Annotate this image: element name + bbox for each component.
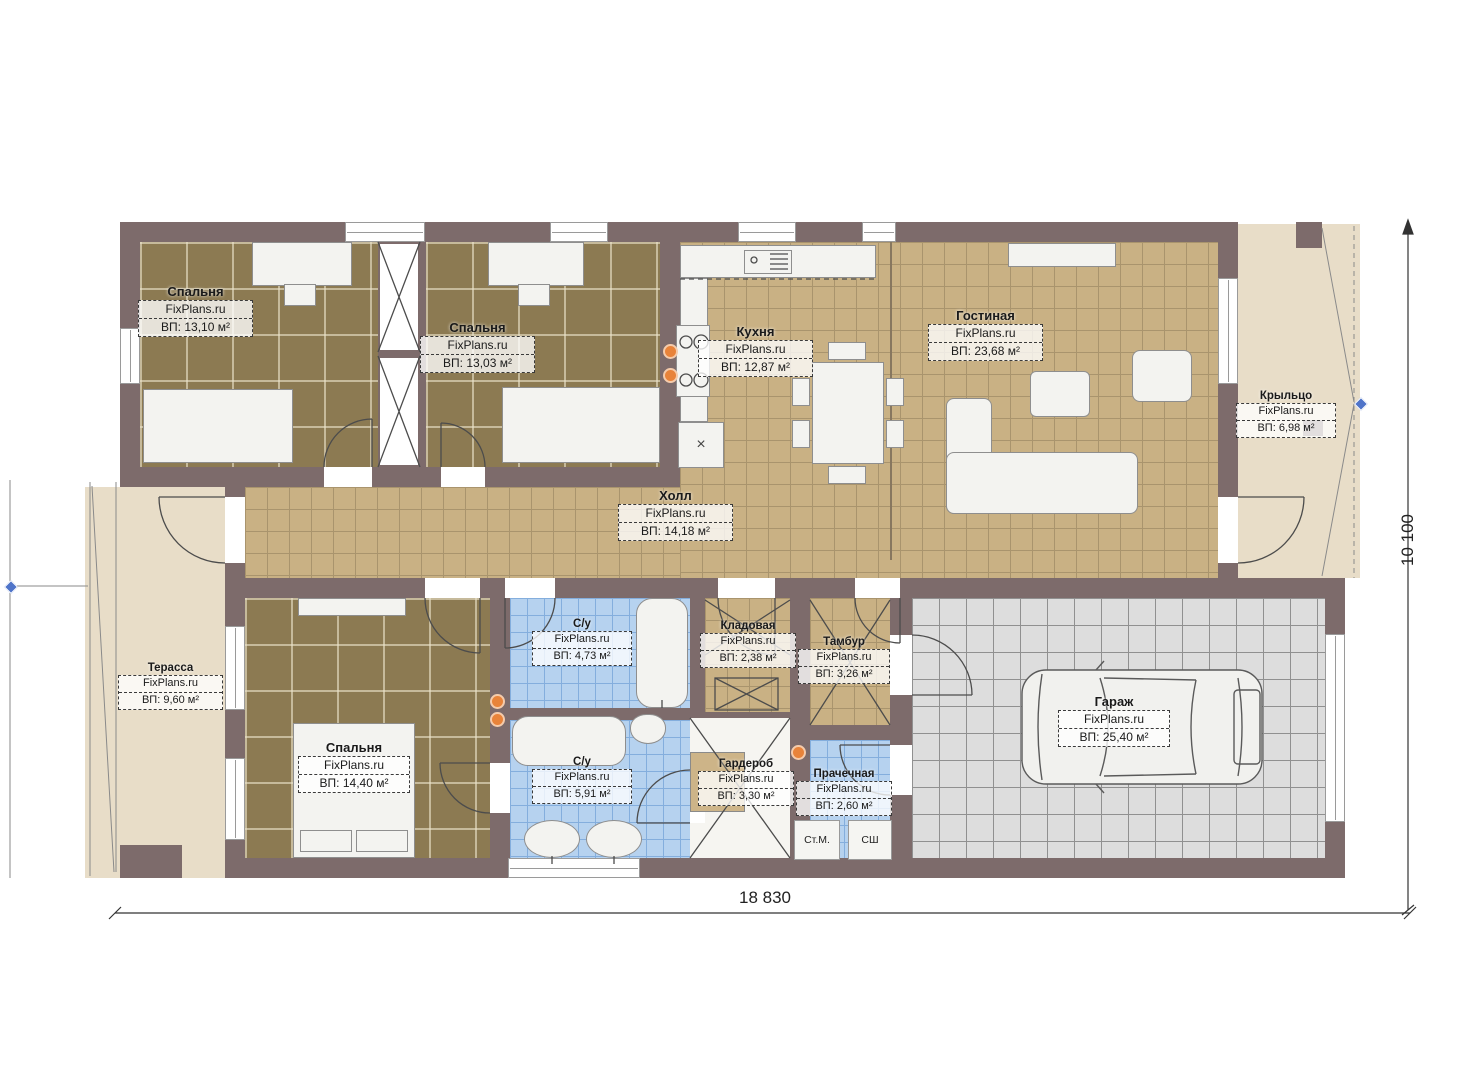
kitchen-cabinet: × [678,422,724,468]
room-name: Тамбур [798,636,890,648]
window [550,222,608,242]
terrace-pillar [120,845,182,878]
cabinet-x-mark: × [696,436,705,454]
washing-machine: Ст.М. [794,820,840,860]
room-label-wardrobe: Гардероб FixPlans.ru ВП: 3,30 м² [698,758,794,806]
chair [518,284,550,306]
outlet-icon [663,368,678,383]
room-name: Спальня [420,320,535,335]
brand-label: FixPlans.ru [797,782,891,799]
door-opening [890,745,912,795]
drying-machine-label: СШ [861,834,878,846]
room-area: ВП: 3,26 м² [799,667,889,683]
washbasin [586,820,642,858]
bathtub [636,598,688,708]
room-area: ВП: 13,10 м² [139,319,252,336]
window [1218,278,1238,384]
room-label-bath2: С/у FixPlans.ru ВП: 5,91 м² [532,756,632,804]
chair [886,420,904,448]
room-label-terrace: Терасса FixPlans.ru ВП: 9,60 м² [118,662,223,710]
floor-plan: × Ст.М. СШ [0,0,1474,1080]
outlet-icon [663,344,678,359]
window [508,858,640,878]
room-label-bedroom2: Спальня FixPlans.ru ВП: 13,03 м² [420,320,535,373]
room-label-kitchen: Кухня FixPlans.ru ВП: 12,87 м² [698,324,813,377]
room-area: ВП: 25,40 м² [1059,729,1169,746]
room-label-bedroom1: Спальня FixPlans.ru ВП: 13,10 м² [138,284,253,337]
toilet [630,714,666,744]
chair [792,420,810,448]
outlet-icon [490,694,505,709]
coffee-table [1030,371,1090,417]
room-name: Спальня [138,284,253,299]
chair [792,378,810,406]
garage-gate [1325,634,1345,822]
room-name: Гардероб [698,758,794,770]
brand-label: FixPlans.ru [699,341,812,359]
bed [502,387,660,463]
window [120,328,140,384]
room-name: Спальня [298,740,410,755]
room-label-porch: Крыльцо FixPlans.ru ВП: 6,98 м² [1236,390,1336,438]
room-area: ВП: 9,60 м² [119,693,222,709]
brand-label: FixPlans.ru [299,757,409,775]
room-area: ВП: 12,87 м² [699,359,812,376]
brand-label: FixPlans.ru [119,676,222,693]
washbasin [524,820,580,858]
washing-machine-label: Ст.М. [804,834,830,846]
brand-label: FixPlans.ru [421,337,534,355]
room-area: ВП: 4,73 м² [533,649,631,665]
room-name: Гостиная [928,308,1043,323]
room-label-living: Гостиная FixPlans.ru ВП: 23,68 м² [928,308,1043,361]
brand-label: FixPlans.ru [1237,404,1335,421]
brand-label: FixPlans.ru [1059,711,1169,729]
wardrobe-cabinet [298,598,406,616]
room-area: ВП: 2,38 м² [701,651,795,667]
room-name: С/у [532,756,632,768]
desk [488,242,584,286]
door-opening [490,763,510,813]
dimension-marker-icon [4,580,18,594]
door-opening [505,578,555,598]
window [225,758,245,840]
brand-label: FixPlans.ru [533,770,631,787]
room-label-storage: Кладовая FixPlans.ru ВП: 2,38 м² [700,620,796,668]
chair [828,342,866,360]
brand-label: FixPlans.ru [533,632,631,649]
room-label-laundry: Прачечная FixPlans.ru ВП: 2,60 м² [796,768,892,816]
desk [252,242,352,286]
dimension-height: 10 100 [1398,500,1418,580]
room-area: ВП: 23,68 м² [929,343,1042,360]
pillow [300,830,352,852]
outlet-icon [490,712,505,727]
brand-label: FixPlans.ru [619,505,732,523]
dining-table [812,362,884,464]
room-name: Холл [618,488,733,503]
dimension-width: 18 830 [700,888,830,908]
room-area: ВП: 6,98 м² [1237,421,1335,437]
door-opening [718,578,775,598]
room-label-garage: Гараж FixPlans.ru ВП: 25,40 м² [1058,694,1170,747]
brand-label: FixPlans.ru [699,772,793,789]
door-opening [324,467,372,487]
tv-cabinet [1008,243,1116,267]
window [345,222,425,242]
bed [143,389,293,463]
door-opening [425,578,480,598]
closet-shaft [378,242,420,352]
room-name: Гараж [1058,694,1170,709]
door-opening [855,578,900,598]
door-opening [890,635,912,695]
room-area: ВП: 14,18 м² [619,523,732,540]
pillow [356,830,408,852]
chair [886,378,904,406]
porch-pillar [1296,222,1322,248]
room-name: Крыльцо [1236,390,1336,402]
chair [284,284,316,306]
armchair [1132,350,1192,402]
door-opening [1218,497,1238,563]
sofa [946,452,1138,514]
brand-label: FixPlans.ru [139,301,252,319]
room-name: Кладовая [700,620,796,632]
brand-label: FixPlans.ru [799,650,889,667]
window [862,222,896,242]
room-label-bath1: С/у FixPlans.ru ВП: 4,73 м² [532,618,632,666]
floor-hall [245,487,680,578]
kitchen-sink [744,250,792,274]
room-area: ВП: 13,03 м² [421,355,534,372]
room-area: ВП: 5,91 м² [533,787,631,803]
room-name: Терасса [118,662,223,674]
room-name: Прачечная [796,768,892,780]
door-opening [441,467,485,487]
room-name: Кухня [698,324,813,339]
room-label-hall: Холл FixPlans.ru ВП: 14,18 м² [618,488,733,541]
closet-shaft [378,356,420,467]
room-name: С/у [532,618,632,630]
drying-machine: СШ [848,820,892,860]
room-area: ВП: 14,40 м² [299,775,409,792]
door-opening [225,497,245,563]
room-label-bedroom3: Спальня FixPlans.ru ВП: 14,40 м² [298,740,410,793]
brand-label: FixPlans.ru [701,634,795,651]
chair [828,466,866,484]
window [225,626,245,710]
vent-window [738,222,796,242]
brand-label: FixPlans.ru [929,325,1042,343]
room-area: ВП: 2,60 м² [797,799,891,815]
room-label-vestibule: Тамбур FixPlans.ru ВП: 3,26 м² [798,636,890,684]
room-area: ВП: 3,30 м² [699,789,793,805]
